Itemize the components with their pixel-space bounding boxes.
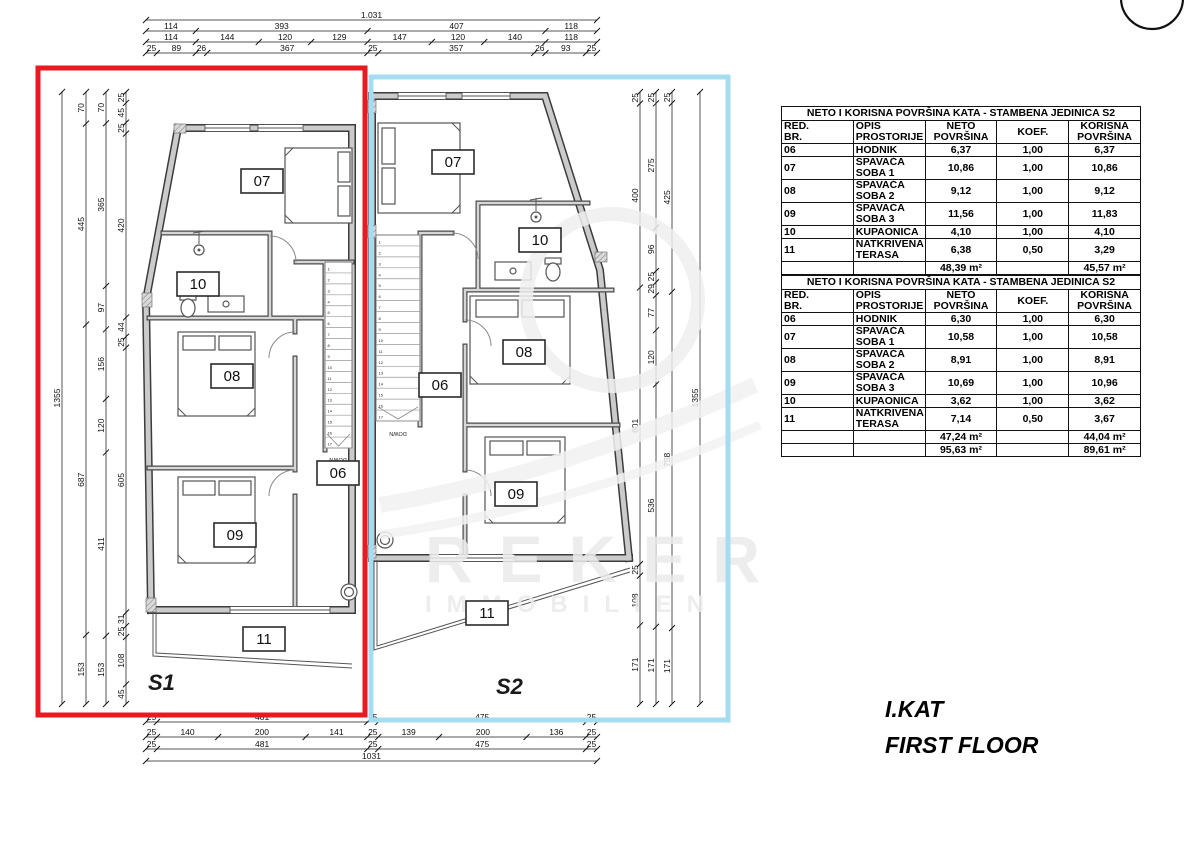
- table-cell: [997, 262, 1069, 275]
- table-cell: 45,57 m²: [1069, 262, 1141, 275]
- area-table-s2: NETO I KORISNA POVRŠINA KATA - STAMBENA …: [781, 275, 1141, 457]
- room-label-s2-06: 06: [432, 377, 449, 394]
- s1-stairs: 1234567891011121314151617: [325, 262, 352, 448]
- table-cell: 3,67: [1069, 408, 1141, 431]
- dimension-label: 118: [564, 21, 578, 31]
- table-cell: 1,00: [997, 313, 1069, 326]
- stair-tread-number: 17: [379, 415, 384, 420]
- table-cell: 6,30: [925, 313, 997, 326]
- table-cell: 1,00: [997, 226, 1069, 239]
- dimension-label: 97: [96, 303, 106, 313]
- dimension-label: 129: [332, 32, 346, 42]
- table-cell: NATKRIVENA TERASA: [853, 239, 925, 262]
- watermark-swoosh: [380, 385, 755, 505]
- watermark: REKER IMMOBILIEN: [380, 214, 786, 618]
- dimension-label: 25: [646, 93, 656, 103]
- dimension-label: 605: [116, 473, 126, 487]
- dimension-label: 25: [587, 739, 597, 749]
- stair-tread-number: 10: [379, 338, 384, 343]
- dimension-label: 425: [662, 190, 672, 204]
- table-cell: 06: [782, 144, 854, 157]
- dimension-label: 1355: [52, 388, 62, 407]
- stair-tread-number: 15: [328, 420, 333, 425]
- dimension-label: 70: [76, 103, 86, 113]
- dimension-label: 118: [564, 32, 578, 42]
- table-cell: [997, 444, 1069, 457]
- dimension-label: 25: [147, 727, 157, 737]
- table-cell: NETO I KORISNA POVRŠINA KATA - STAMBENA …: [782, 107, 1141, 121]
- table-cell: NETO POVRŠINA: [925, 121, 997, 144]
- dimension-label: 140: [508, 32, 522, 42]
- dimension-label: 108: [116, 653, 126, 667]
- table-cell: 11,83: [1069, 203, 1141, 226]
- dimension-label: 25: [368, 43, 378, 53]
- area-tables: NETO I KORISNA POVRŠINA KATA - STAMBENA …: [781, 106, 1141, 457]
- dimension-label: 25: [368, 739, 378, 749]
- table-cell: KORISNA POVRŠINA: [1069, 290, 1141, 313]
- table-cell: 1,00: [997, 203, 1069, 226]
- dimension-label: 25: [116, 92, 126, 102]
- table-cell: [853, 262, 925, 275]
- dimension-label: 275: [646, 158, 656, 172]
- dimension-label: 420: [116, 218, 126, 232]
- dimension-label: 357: [449, 43, 463, 53]
- dimension-label: 147: [393, 32, 407, 42]
- dimension-label: 171: [662, 659, 672, 673]
- stair-tread-number: 17: [328, 442, 333, 447]
- table-cell: 3,62: [1069, 395, 1141, 408]
- table-cell: OPIS PROSTORIJE: [853, 290, 925, 313]
- table-cell: 6,37: [1069, 144, 1141, 157]
- table-cell: 89,61 m²: [1069, 444, 1141, 457]
- dimension-label: 31: [116, 614, 126, 624]
- table-cell: SPAVAĆA SOBA 3: [853, 203, 925, 226]
- dimension-label: 365: [96, 197, 106, 211]
- table-cell: 95,63 m²: [925, 444, 997, 457]
- dimension-label: 29: [646, 284, 656, 294]
- stair-tread-number: 13: [328, 398, 333, 403]
- table-cell: 1,00: [997, 372, 1069, 395]
- dimension-label: 156: [96, 357, 106, 371]
- dimension-label: 481: [255, 739, 269, 749]
- dimension-label: 120: [646, 350, 656, 364]
- table-cell: 0,50: [997, 408, 1069, 431]
- table-cell: 10,86: [1069, 157, 1141, 180]
- dimension-label: 25: [147, 739, 157, 749]
- table-cell: 06: [782, 313, 854, 326]
- table-cell: SPAVAĆA SOBA 1: [853, 157, 925, 180]
- sheet-title-en: FIRST FLOOR: [885, 728, 1038, 764]
- table-cell: 07: [782, 157, 854, 180]
- table-cell: SPAVAĆA SOBA 3: [853, 372, 925, 395]
- dimension-label: 25: [587, 727, 597, 737]
- s2-wall-hatch: [595, 252, 607, 262]
- dimension-label: 25: [646, 272, 656, 282]
- dimension-label: 89: [172, 43, 182, 53]
- dimension-label: 25: [368, 727, 378, 737]
- table-cell: [853, 444, 925, 457]
- table-cell: 1,00: [997, 395, 1069, 408]
- dimension-label: 114: [164, 32, 178, 42]
- dimension-label: 407: [449, 21, 463, 31]
- table-cell: 10: [782, 226, 854, 239]
- room-label-s1-08: 08: [224, 368, 241, 385]
- table-cell: 10: [782, 395, 854, 408]
- dimension-label: 114: [164, 21, 178, 31]
- dimension-label: 411: [96, 537, 106, 551]
- table-cell: 4,10: [1069, 226, 1141, 239]
- s1-sink: [208, 296, 244, 312]
- dimension-label: 171: [630, 657, 640, 671]
- table-cell: SPAVAĆA SOBA 1: [853, 326, 925, 349]
- room-label-s1-09: 09: [227, 527, 244, 544]
- table-cell: 1,00: [997, 144, 1069, 157]
- dimension-label: 96: [646, 244, 656, 254]
- table-cell: SPAVAĆA SOBA 2: [853, 180, 925, 203]
- stair-tread-number: 13: [379, 371, 384, 376]
- table-cell: 1,00: [997, 180, 1069, 203]
- watermark-line1: REKER: [425, 522, 786, 596]
- dimension-label: 393: [275, 21, 289, 31]
- dimension-label: 153: [96, 663, 106, 677]
- watermark-swoosh: [380, 425, 760, 535]
- table-cell: KOEF.: [997, 290, 1069, 313]
- dimension-label: 120: [278, 32, 292, 42]
- dimension-label: 1.031: [361, 10, 383, 20]
- room-label-s1-06: 06: [330, 465, 347, 482]
- dimension-label: 200: [255, 727, 269, 737]
- table-cell: 7,14: [925, 408, 997, 431]
- s2-toilet: [545, 258, 561, 281]
- room-label-s2-07: 07: [445, 154, 462, 171]
- table-cell: 44,04 m²: [1069, 431, 1141, 444]
- table-cell: 08: [782, 180, 854, 203]
- dimension-label: 140: [180, 727, 194, 737]
- table-cell: 1,00: [997, 349, 1069, 372]
- dimension-label: 153: [76, 662, 86, 676]
- s1-wall-hatch: [146, 598, 156, 612]
- table-cell: NETO POVRŠINA: [925, 290, 997, 313]
- dimension-label: 200: [476, 727, 490, 737]
- dimension-label: 25: [116, 337, 126, 347]
- stair-tread-number: 14: [379, 382, 384, 387]
- table-cell: 3,29: [1069, 239, 1141, 262]
- dimension-label: 445: [76, 217, 86, 231]
- dimension-label: 25: [147, 43, 157, 53]
- table-cell: SPAVAĆA SOBA 2: [853, 349, 925, 372]
- table-cell: 6,38: [925, 239, 997, 262]
- table-cell: 1,00: [997, 326, 1069, 349]
- dimension-label: 25: [587, 43, 597, 53]
- title-block: I.KAT FIRST FLOOR: [885, 692, 1038, 763]
- stair-tread-number: 15: [379, 393, 384, 398]
- room-label-s1-07: 07: [254, 173, 271, 190]
- table-cell: [997, 431, 1069, 444]
- table-cell: KUPAONICA: [853, 226, 925, 239]
- dimension-label: 687: [76, 472, 86, 486]
- dimension-label: 136: [549, 727, 563, 737]
- stair-tread-number: 10: [328, 365, 333, 370]
- dimension-label: 26: [197, 43, 207, 53]
- sheet-title-hr: I.KAT: [885, 692, 1038, 728]
- dimension-label: 45: [116, 108, 126, 118]
- dimension-label: 139: [402, 727, 416, 737]
- dimension-label: 144: [220, 32, 234, 42]
- table-cell: [782, 431, 854, 444]
- dimension-label: 45: [116, 689, 126, 699]
- dimension-label: 93: [561, 43, 571, 53]
- table-cell: RED. BR.: [782, 290, 854, 313]
- table-cell: 3,62: [925, 395, 997, 408]
- stair-tread-number: 12: [379, 360, 384, 365]
- dimension-label: 120: [96, 418, 106, 432]
- s2-stairs-down-label: DOWN: [389, 430, 406, 436]
- table-cell: [853, 431, 925, 444]
- s1-drain-icon-inner: [345, 588, 354, 597]
- table-cell: [782, 444, 854, 457]
- dimension-label: 44: [116, 322, 126, 332]
- dimension-label: 1031: [362, 751, 381, 761]
- table-cell: 10,86: [925, 157, 997, 180]
- table-cell: 09: [782, 203, 854, 226]
- room-label-s2-11: 11: [479, 605, 495, 622]
- table-cell: 10,69: [925, 372, 997, 395]
- dimension-label: 400: [630, 188, 640, 202]
- table-cell: 9,12: [1069, 180, 1141, 203]
- dimension-label: 77: [646, 308, 656, 318]
- table-cell: 0,50: [997, 239, 1069, 262]
- dimension-label: 25: [662, 93, 672, 103]
- s2-stairs: 1234567891011121314151617: [376, 235, 420, 421]
- dimension-label: 70: [96, 103, 106, 113]
- s1-bed-09: [178, 477, 255, 563]
- dimension-label: 475: [475, 739, 489, 749]
- table-cell: 4,10: [925, 226, 997, 239]
- table-cell: RED. BR.: [782, 121, 854, 144]
- dimension-label: 536: [646, 498, 656, 512]
- s1-bed-07: [285, 148, 352, 223]
- table-cell: [782, 262, 854, 275]
- table-cell: 6,37: [925, 144, 997, 157]
- room-label-s2-08: 08: [516, 344, 533, 361]
- stair-tread-number: 14: [328, 409, 333, 414]
- table-cell: 10,96: [1069, 372, 1141, 395]
- table-cell: 10,58: [1069, 326, 1141, 349]
- dimension-label: 25: [630, 93, 640, 103]
- room-label-s1-10: 10: [190, 276, 207, 293]
- dimension-label: 25: [116, 627, 126, 637]
- table-cell: OPIS PROSTORIJE: [853, 121, 925, 144]
- table-cell: 11: [782, 239, 854, 262]
- table-cell: NATKRIVENA TERASA: [853, 408, 925, 431]
- table-cell: 08: [782, 349, 854, 372]
- unit-s1-label: S1: [148, 670, 175, 695]
- dimension-label: 367: [280, 43, 294, 53]
- table-cell: 10,58: [925, 326, 997, 349]
- table-cell: 1,00: [997, 157, 1069, 180]
- table-cell: KUPAONICA: [853, 395, 925, 408]
- table-cell: 8,91: [1069, 349, 1141, 372]
- table-cell: 11,56: [925, 203, 997, 226]
- table-cell: HODNIK: [853, 313, 925, 326]
- dimension-label: 120: [451, 32, 465, 42]
- dimension-label: 171: [646, 658, 656, 672]
- s1-toilet: [180, 294, 196, 317]
- unit-s2-label: S2: [496, 674, 524, 699]
- drawing-sheet: 1.03111439340711811414412012914712014011…: [0, 0, 1200, 864]
- dimension-label: 26: [535, 43, 545, 53]
- s1-door-arcs: [269, 236, 296, 496]
- stair-tread-number: 12: [328, 387, 333, 392]
- s1-wall-hatch: [174, 124, 186, 133]
- table-cell: 9,12: [925, 180, 997, 203]
- north-arrow-icon: [1121, 0, 1183, 29]
- table-cell: 11: [782, 408, 854, 431]
- table-cell: KOEF.: [997, 121, 1069, 144]
- unit-s1-plan: 1234567891011121314151617 DOWN: [142, 124, 357, 668]
- dimension-label: 25: [116, 123, 126, 133]
- table-cell: 8,91: [925, 349, 997, 372]
- dimension-label: 141: [329, 727, 343, 737]
- table-cell: 48,39 m²: [925, 262, 997, 275]
- s1-wall-hatch: [142, 293, 152, 307]
- table-cell: 6,30: [1069, 313, 1141, 326]
- table-cell: 47,24 m²: [925, 431, 997, 444]
- table-cell: HODNIK: [853, 144, 925, 157]
- room-label-s2-09: 09: [508, 486, 525, 503]
- area-table-s1: NETO I KORISNA POVRŠINA KATA - STAMBENA …: [781, 106, 1141, 275]
- room-label-s2-10: 10: [532, 232, 549, 249]
- table-cell: KORISNA POVRŠINA: [1069, 121, 1141, 144]
- table-cell: 07: [782, 326, 854, 349]
- table-cell: NETO I KORISNA POVRŠINA KATA - STAMBENA …: [782, 276, 1141, 290]
- room-label-s1-11: 11: [256, 631, 272, 648]
- table-cell: 09: [782, 372, 854, 395]
